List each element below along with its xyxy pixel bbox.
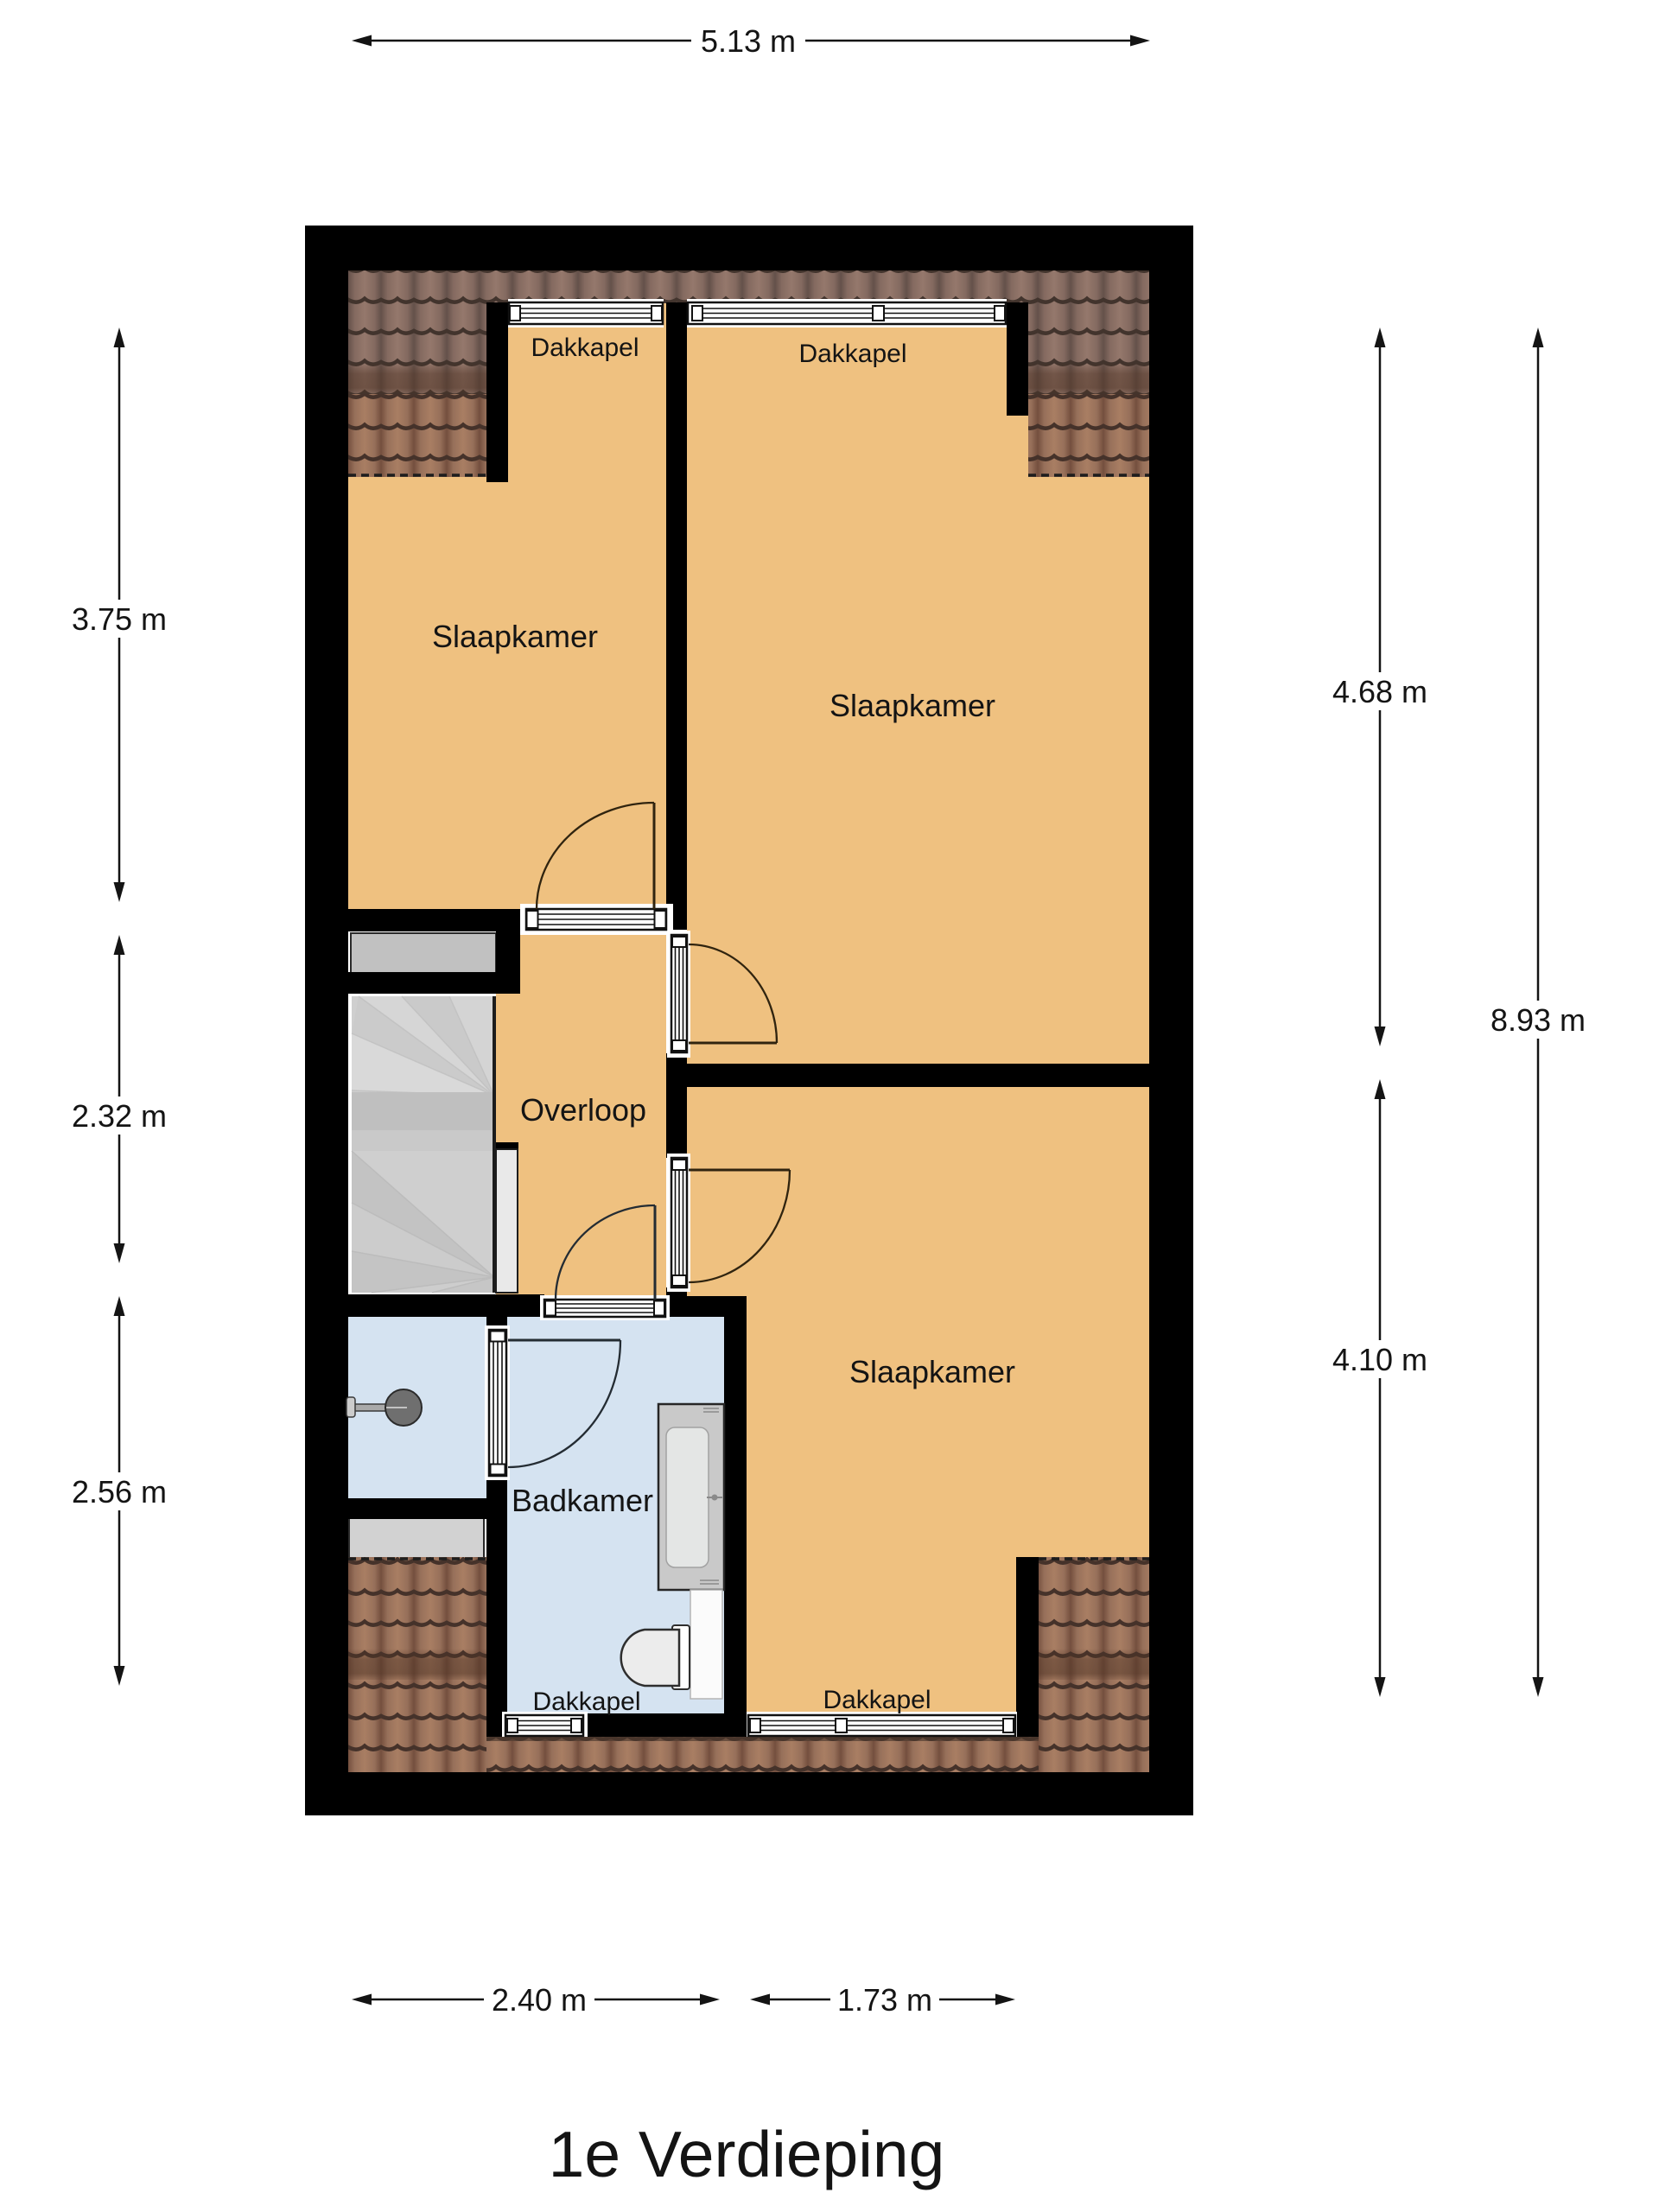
svg-text:Dakkapel: Dakkapel xyxy=(798,340,906,368)
svg-text:2.56 m: 2.56 m xyxy=(72,1474,167,1510)
svg-text:Slaapkamer: Slaapkamer xyxy=(849,1354,1015,1389)
svg-text:Slaapkamer: Slaapkamer xyxy=(829,688,995,723)
svg-text:4.10 m: 4.10 m xyxy=(1332,1342,1427,1377)
svg-text:Dakkapel: Dakkapel xyxy=(823,1686,931,1714)
svg-text:3.75 m: 3.75 m xyxy=(72,601,167,637)
svg-text:Dakkapel: Dakkapel xyxy=(532,1688,640,1716)
svg-text:Overloop: Overloop xyxy=(520,1092,646,1128)
svg-text:2.40 m: 2.40 m xyxy=(492,1982,587,2018)
svg-text:Dakkapel: Dakkapel xyxy=(531,334,639,362)
svg-text:1e Verdieping: 1e Verdieping xyxy=(549,2118,945,2190)
svg-text:Slaapkamer: Slaapkamer xyxy=(432,619,598,654)
svg-text:5.13 m: 5.13 m xyxy=(701,23,796,59)
svg-text:4.68 m: 4.68 m xyxy=(1332,674,1427,709)
svg-text:Badkamer: Badkamer xyxy=(512,1483,653,1518)
svg-text:1.73 m: 1.73 m xyxy=(837,1982,932,2018)
svg-text:8.93 m: 8.93 m xyxy=(1491,1002,1586,1038)
svg-text:2.32 m: 2.32 m xyxy=(72,1098,167,1134)
